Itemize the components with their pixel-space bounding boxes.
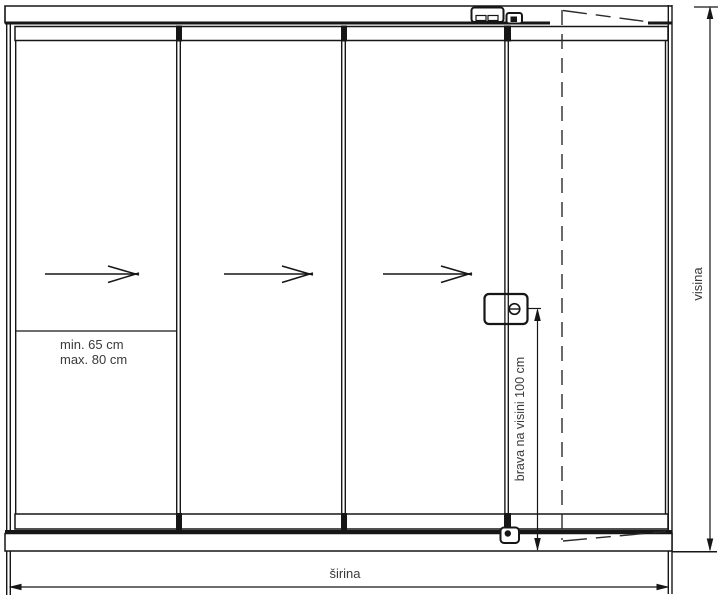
width-dimension: širina <box>9 566 670 590</box>
panel-width-note: min. 65 cm max. 80 cm <box>16 331 177 367</box>
technical-drawing-canvas: min. 65 cm max. 80 cm brava na visini 10… <box>0 0 720 602</box>
lock-height-label: brava na visini 100 cm <box>513 357 527 481</box>
slide-arrow-panel-1 <box>45 266 139 283</box>
height-dimension-label: visina <box>690 267 705 301</box>
top-pivot-hardware-icon <box>472 8 523 24</box>
arrowhead-up-icon <box>707 6 714 19</box>
right-frame-jamb <box>668 5 672 594</box>
arrowhead-up-icon <box>534 308 541 321</box>
lock-hardware-icon <box>485 294 528 324</box>
slide-arrow-panel-3 <box>383 266 472 283</box>
header-track <box>5 6 672 24</box>
floor-guide-hardware-icon <box>501 528 520 544</box>
panel-max-width-label: max. 80 cm <box>60 352 127 367</box>
slide-direction-arrows <box>45 266 472 283</box>
sliding-glass-wall-drawing: min. 65 cm max. 80 cm brava na visini 10… <box>0 0 720 602</box>
left-frame-jamb <box>7 23 11 595</box>
arrowhead-right-icon <box>657 584 670 591</box>
panel-bottom-rail-band <box>5 513 672 532</box>
glass-panel-edges <box>16 40 666 514</box>
panel-min-width-label: min. 65 cm <box>60 337 124 352</box>
door-swing-dashed-lines <box>562 10 666 541</box>
slide-arrow-panel-2 <box>224 266 313 283</box>
height-dimension: visina <box>690 6 718 552</box>
arrowhead-down-icon <box>707 539 714 552</box>
width-dimension-label: širina <box>329 566 361 581</box>
panel-top-rail-band <box>15 26 668 42</box>
